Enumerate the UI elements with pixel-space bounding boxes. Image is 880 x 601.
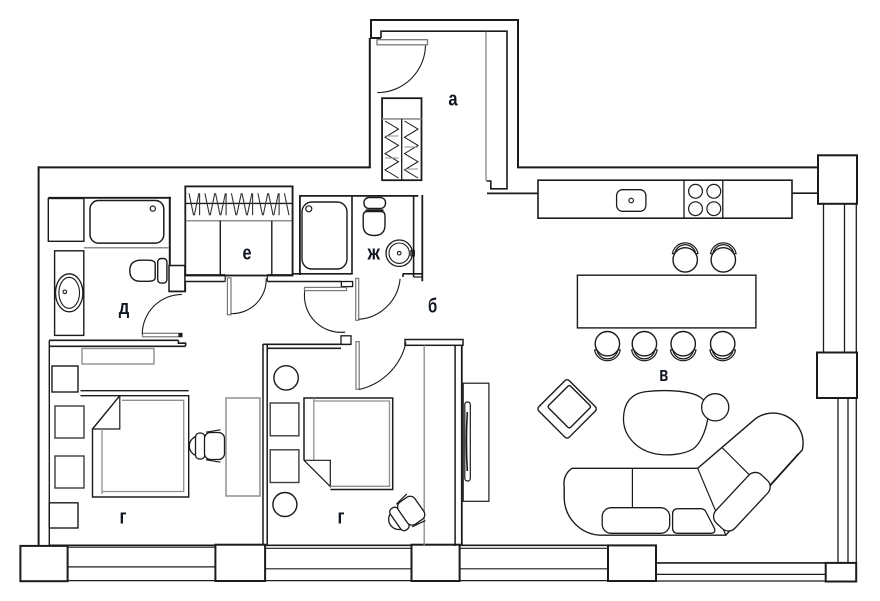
svg-text:д: д — [119, 296, 130, 319]
svg-text:б: б — [428, 295, 437, 318]
svg-text:е: е — [243, 242, 252, 265]
svg-text:ж: ж — [367, 242, 381, 265]
svg-text:в: в — [659, 363, 668, 386]
svg-text:а: а — [448, 88, 458, 111]
svg-text:г: г — [120, 506, 127, 529]
svg-text:г: г — [338, 506, 345, 529]
